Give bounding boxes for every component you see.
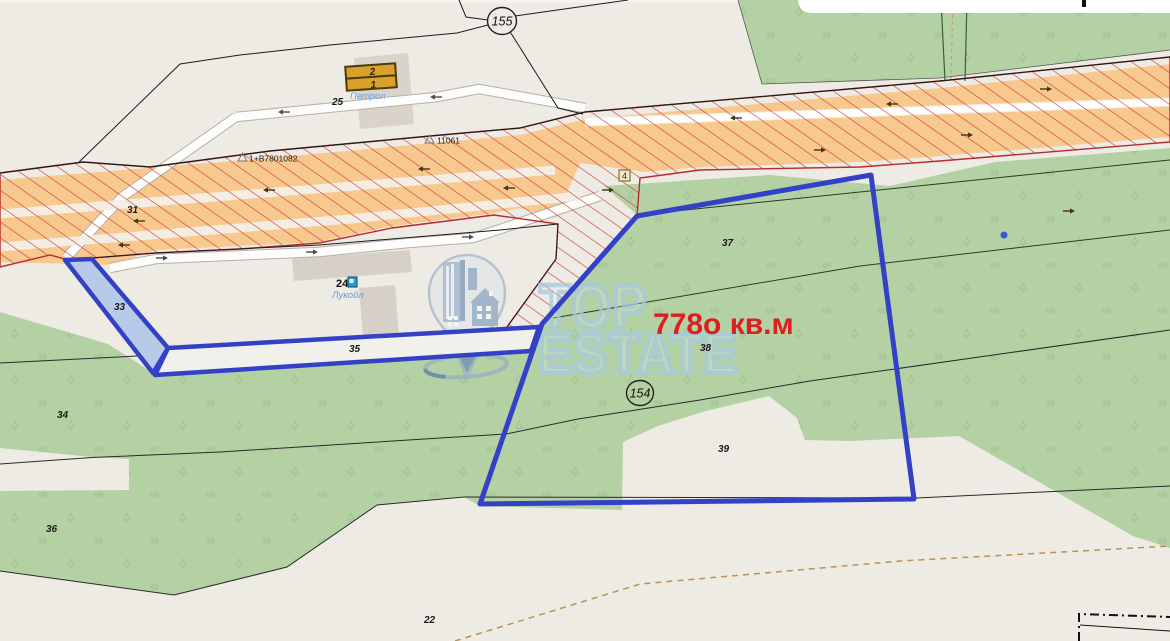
svg-text:36: 36 — [46, 524, 58, 535]
svg-text:31: 31 — [127, 205, 139, 216]
svg-text:22: 22 — [423, 615, 436, 626]
svg-text:24: 24 — [336, 278, 349, 290]
svg-text:155: 155 — [492, 15, 513, 29]
svg-text:33: 33 — [114, 302, 126, 313]
svg-text:Петрол: Петрол — [350, 91, 386, 102]
svg-text:Лукойл: Лукойл — [331, 290, 364, 301]
svg-text:1+B7801082: 1+B7801082 — [249, 154, 298, 164]
svg-text:35: 35 — [349, 344, 361, 355]
svg-text:37: 37 — [722, 238, 734, 249]
svg-text:39: 39 — [718, 444, 730, 455]
svg-text:25: 25 — [331, 97, 344, 108]
svg-text:34: 34 — [57, 410, 69, 421]
svg-text:778о кв.м: 778о кв.м — [653, 308, 794, 341]
svg-text:11061: 11061 — [437, 136, 460, 146]
svg-text:154: 154 — [630, 387, 651, 401]
svg-text:38: 38 — [700, 343, 712, 354]
svg-text:2: 2 — [368, 67, 376, 78]
svg-text:4: 4 — [622, 171, 627, 181]
